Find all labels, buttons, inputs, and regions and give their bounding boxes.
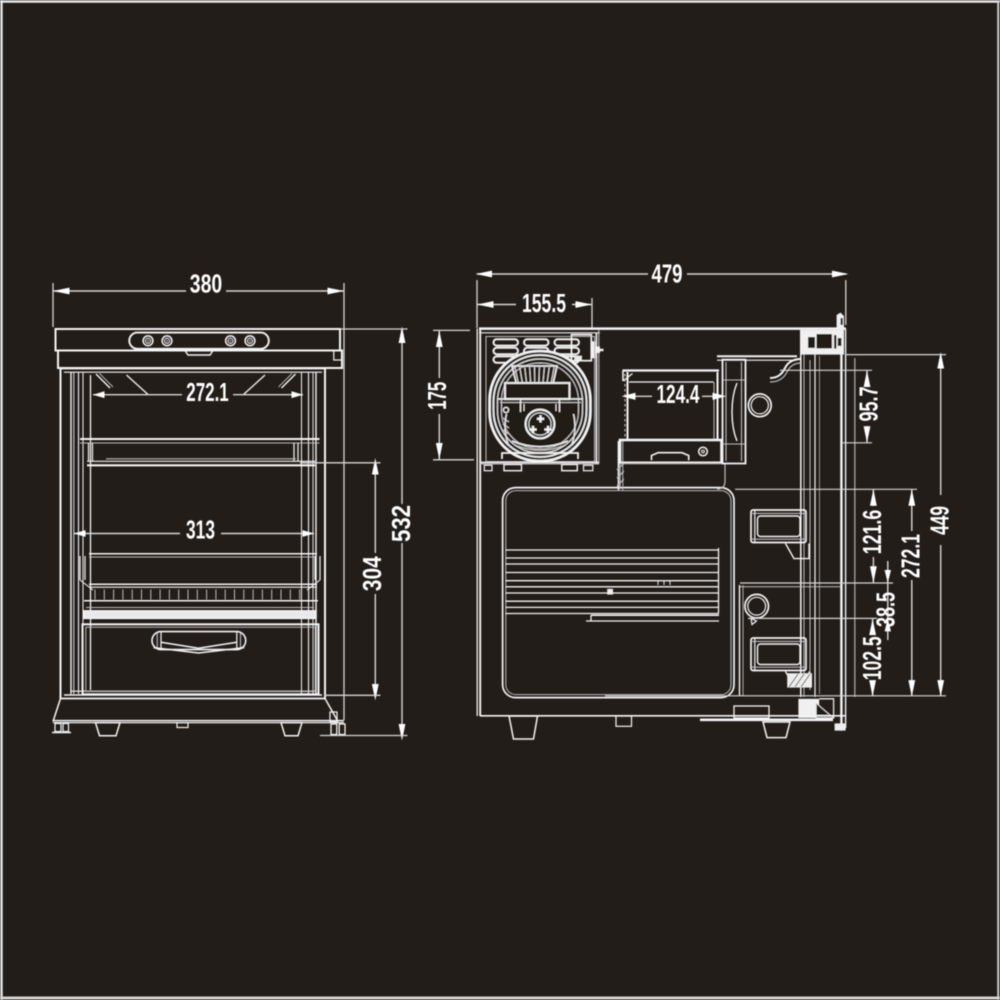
svg-text:380: 380: [190, 269, 223, 299]
svg-text:38.5: 38.5: [871, 592, 901, 627]
svg-text:175: 175: [422, 382, 452, 410]
svg-text:95.7: 95.7: [854, 387, 884, 422]
svg-text:102.5: 102.5: [857, 636, 887, 680]
svg-text:479: 479: [652, 259, 683, 289]
svg-text:272.1: 272.1: [186, 377, 229, 407]
svg-text:121.6: 121.6: [857, 510, 887, 555]
svg-text:304: 304: [357, 556, 387, 591]
svg-text:449: 449: [925, 506, 955, 535]
svg-text:155.5: 155.5: [522, 288, 566, 318]
svg-text:532: 532: [386, 505, 416, 542]
svg-text:313: 313: [186, 515, 215, 545]
svg-text:124.4: 124.4: [657, 379, 700, 409]
svg-text:272.1: 272.1: [896, 534, 926, 578]
